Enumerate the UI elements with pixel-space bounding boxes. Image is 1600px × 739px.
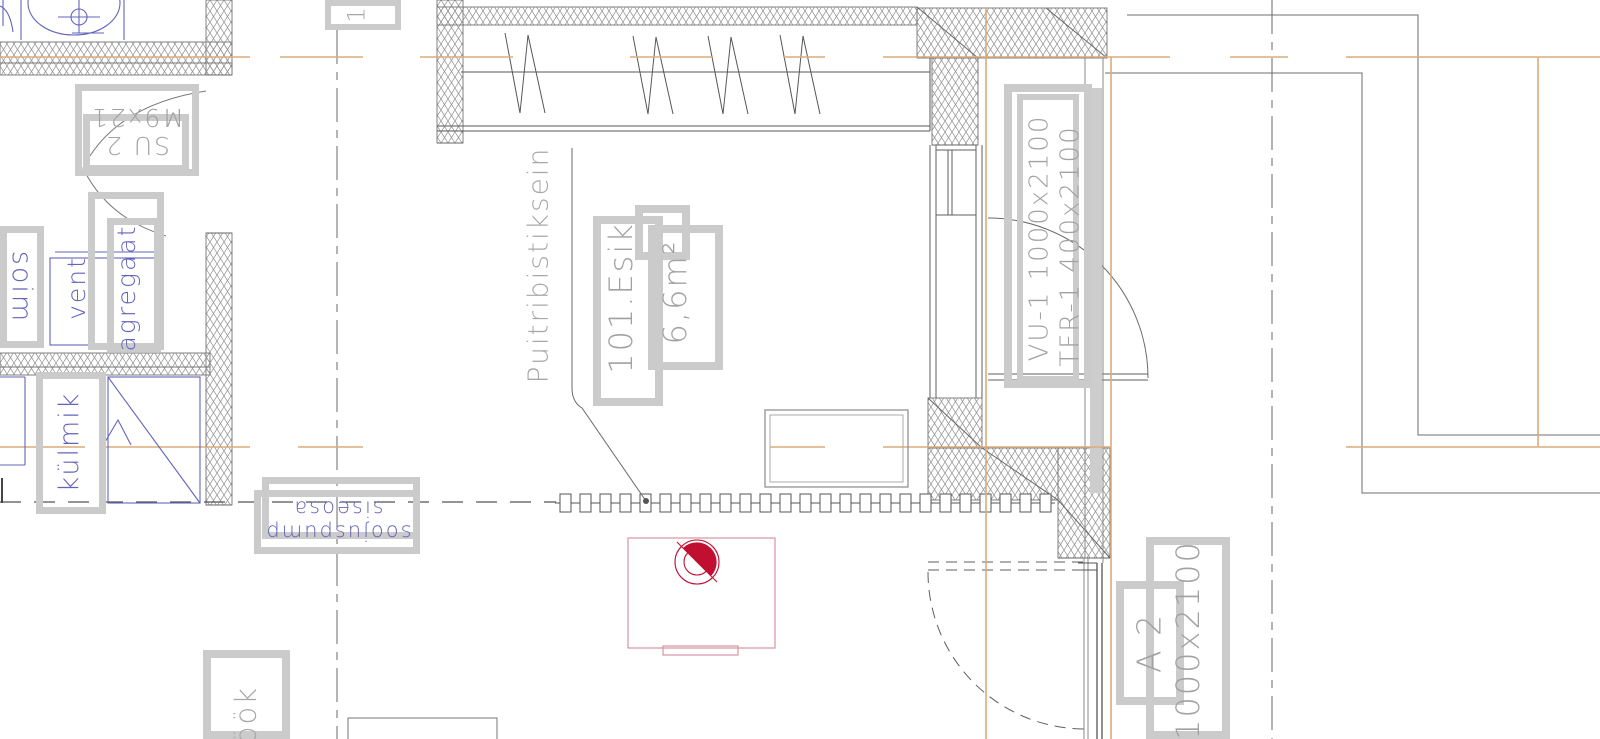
kitchen-label: köök bbox=[230, 686, 262, 739]
door-a2-size-label: 1000x2100 bbox=[1171, 540, 1207, 739]
grid-bubble-label: 1 bbox=[344, 5, 371, 22]
fridge-label: külmik bbox=[55, 392, 85, 493]
bottom-table-rectangle bbox=[348, 718, 497, 739]
slat-partition bbox=[555, 494, 1055, 512]
heatpump-label: soojuspump siseosa bbox=[264, 496, 411, 543]
room-area-label: 6,6m² bbox=[658, 240, 694, 345]
bathtub-icon bbox=[0, 0, 124, 40]
vent-label: vent bbox=[63, 256, 91, 320]
orange-axis-lines bbox=[0, 8, 1600, 739]
floorplan-canvas: 1 SU 2 M9x21 soim vent agregaat külmik s… bbox=[0, 0, 1600, 739]
soim-label: soim bbox=[6, 251, 36, 323]
floorplan-linework bbox=[0, 0, 1600, 739]
door-su2-size: M9x21 bbox=[90, 103, 184, 131]
heatpump-line2: siseosa bbox=[264, 496, 411, 520]
door-a2-code-label: A 2 bbox=[1132, 613, 1169, 673]
partition-wall-label: Puitribistiksein bbox=[522, 147, 553, 384]
fan-equipment-icon bbox=[628, 538, 775, 655]
bench-rectangle bbox=[765, 410, 908, 487]
door-su2-code: SU 2 bbox=[90, 131, 184, 159]
door-vu1-label: VU-1 1000x2100 bbox=[1025, 115, 1054, 362]
terrace-outline bbox=[1105, 15, 1600, 493]
door-su2-label: SU 2 M9x21 bbox=[90, 103, 184, 159]
window-tfr1-label: TFR-1 400x2100 bbox=[1056, 125, 1085, 366]
room-number-label: 101.Esik bbox=[604, 222, 640, 374]
wardrobe-symbols bbox=[437, 33, 930, 131]
heatpump-line1: soojuspump bbox=[264, 520, 411, 544]
vent-agregaat-label: agregaat bbox=[113, 225, 141, 352]
door-a2-dashed bbox=[928, 562, 1087, 729]
